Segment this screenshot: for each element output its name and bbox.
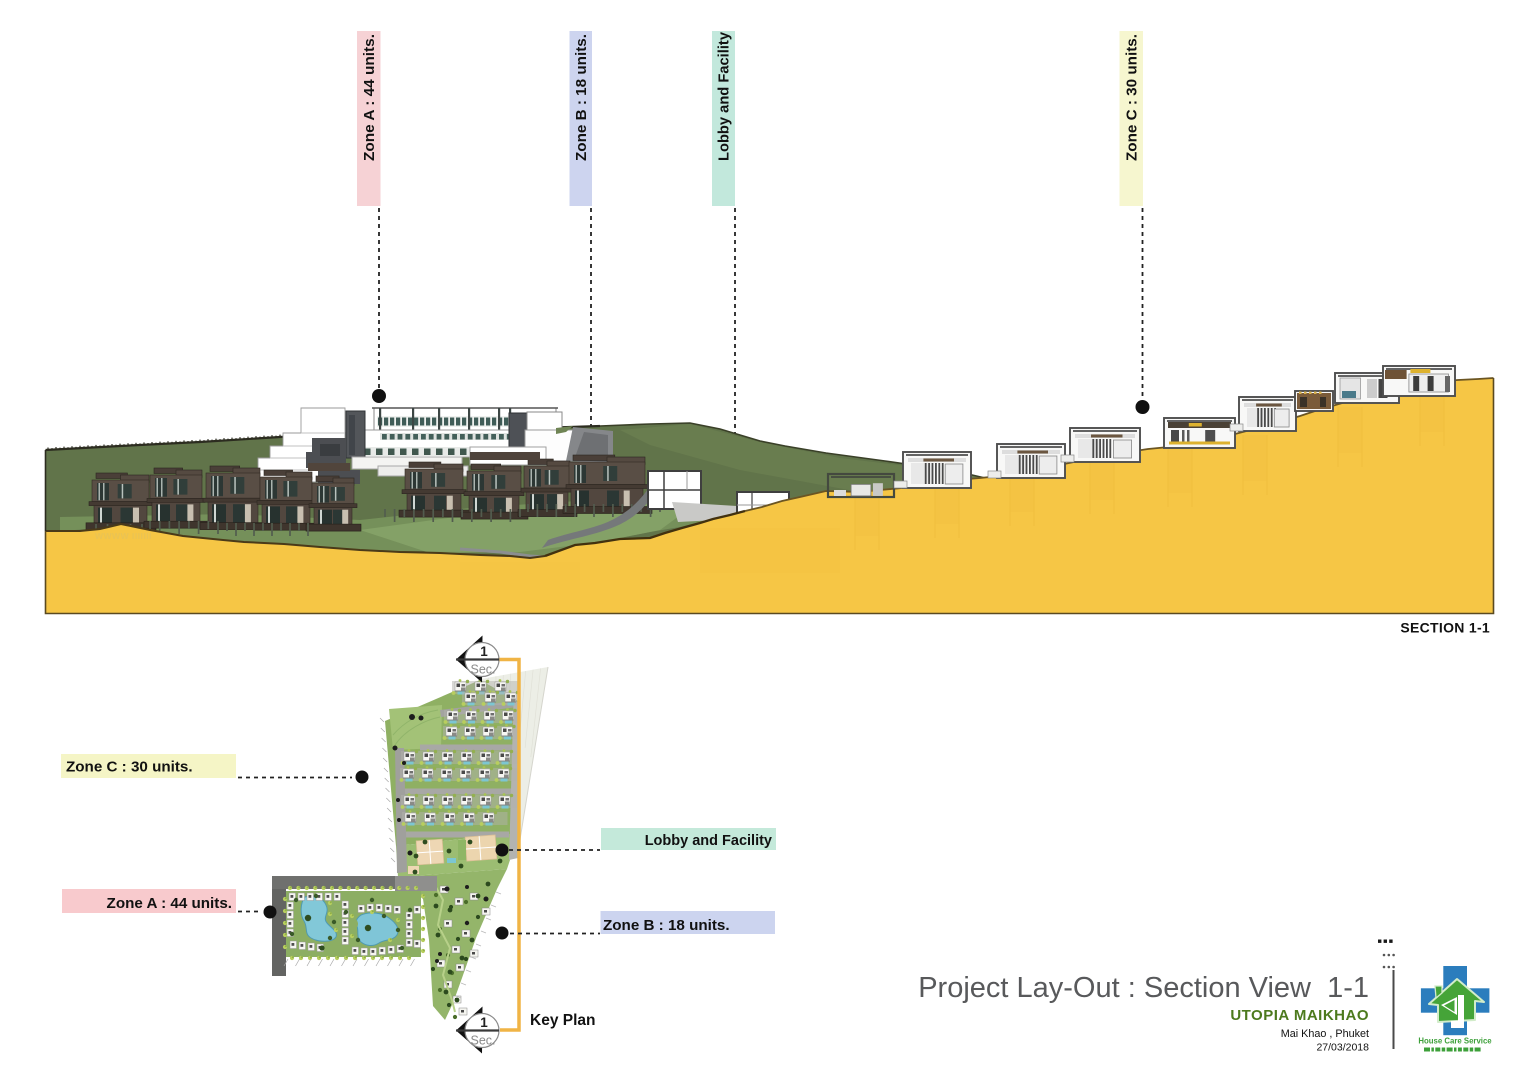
svg-text:Sec.: Sec. (470, 663, 495, 677)
svg-text:Zone B : 18 units.: Zone B : 18 units. (574, 34, 590, 161)
svg-text:Project Lay-Out : Section View: Project Lay-Out : Section View 1-1 (918, 972, 1369, 1004)
svg-text:House Care Service: House Care Service (1418, 1037, 1492, 1046)
svg-text:Zone C : 30 units.: Zone C : 30 units. (1125, 34, 1141, 161)
svg-text:Zone B : 18 units.: Zone B : 18 units. (603, 917, 730, 934)
svg-text:Mai Khao , Phuket: Mai Khao , Phuket (1281, 1028, 1369, 1040)
svg-text:WWWW IIIIIII: WWWW IIIIIII (95, 531, 152, 541)
svg-text:Lobby and Facility: Lobby and Facility (717, 32, 733, 161)
svg-text:1: 1 (480, 1015, 488, 1030)
svg-text:SECTION 1-1: SECTION 1-1 (1400, 620, 1490, 636)
svg-text:Zone A : 44 units.: Zone A : 44 units. (362, 34, 378, 161)
svg-text:Key Plan: Key Plan (530, 1012, 595, 1029)
svg-text:Zone A : 44 units.: Zone A : 44 units. (107, 895, 232, 912)
svg-text:UTOPIA MAIKHAO: UTOPIA MAIKHAO (1230, 1007, 1369, 1024)
svg-text:Lobby and Facility: Lobby and Facility (645, 833, 772, 849)
svg-text:Sec.: Sec. (470, 1034, 495, 1048)
svg-text:27/03/2018: 27/03/2018 (1316, 1042, 1369, 1054)
svg-text:Zone C : 30 units.: Zone C : 30 units. (66, 759, 193, 776)
svg-text:1: 1 (480, 644, 488, 659)
